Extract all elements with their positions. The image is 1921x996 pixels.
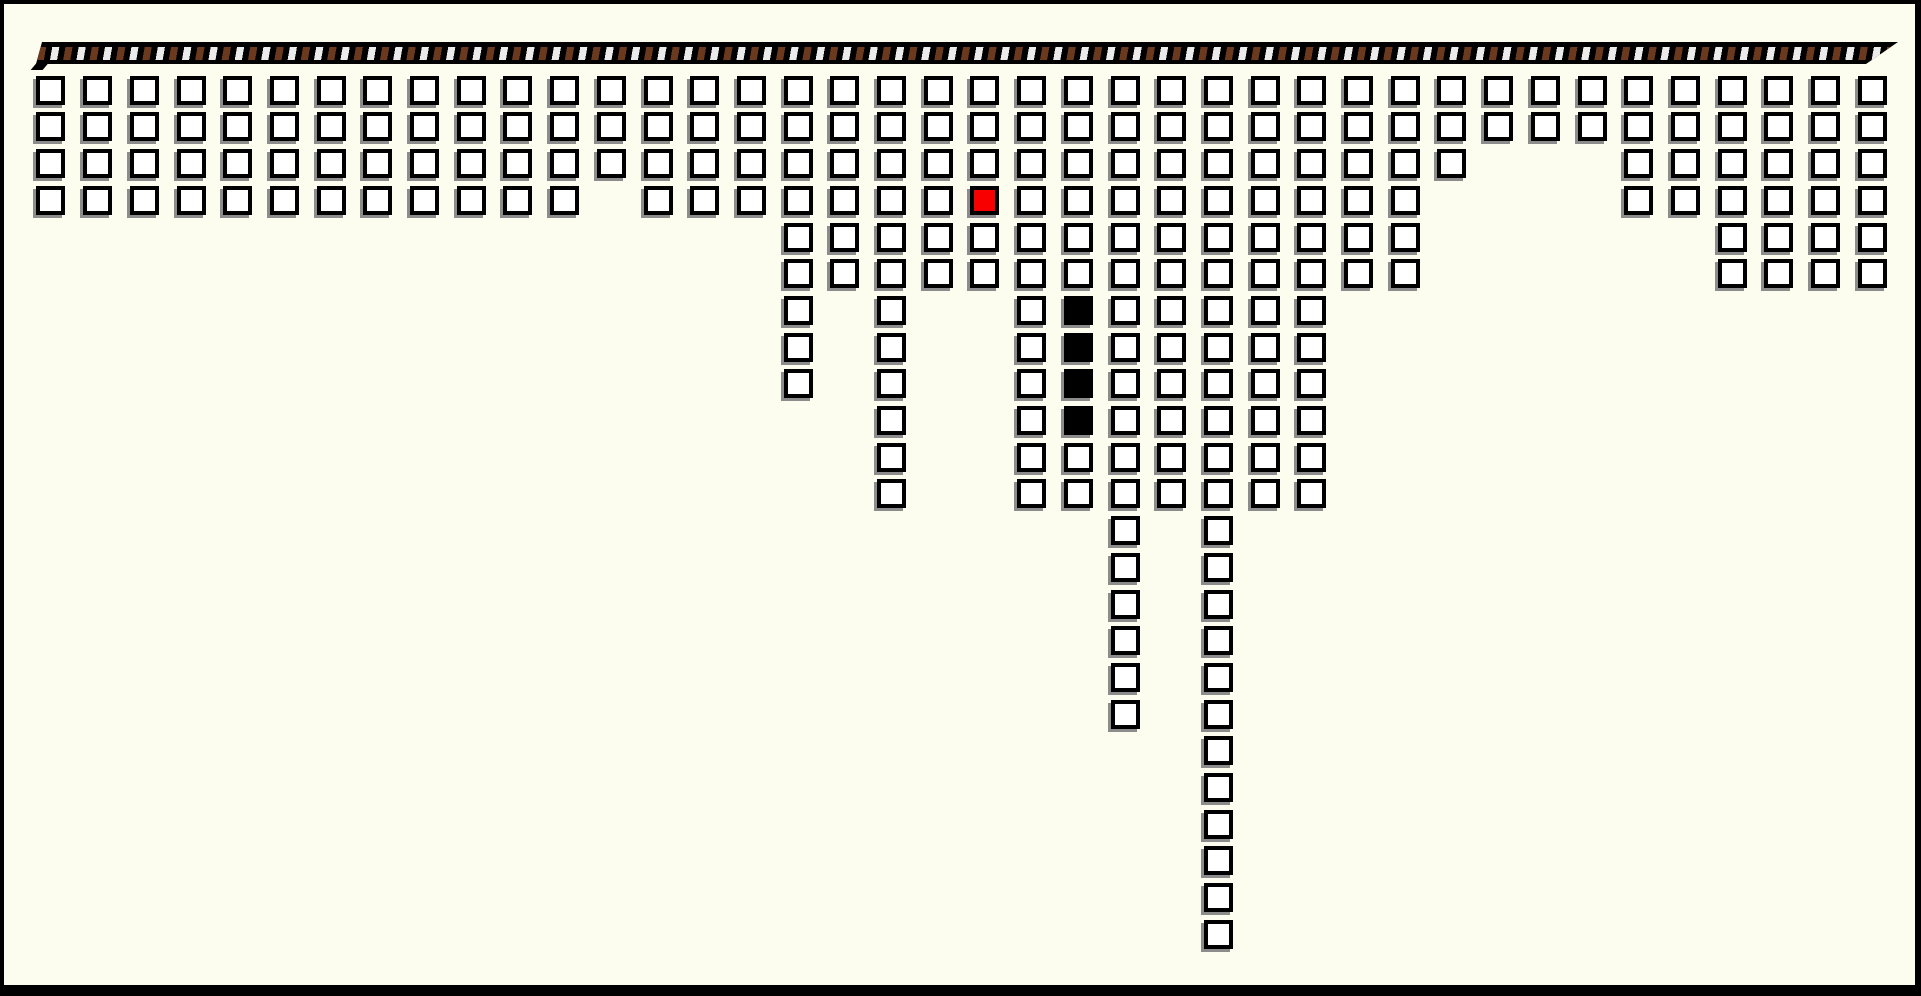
grid-cell: [970, 112, 999, 141]
black-cell: [1064, 333, 1093, 362]
grid-cell: [924, 149, 953, 178]
grid-cell: [597, 149, 626, 178]
grid-cell: [784, 76, 813, 105]
grid-cell: [503, 186, 532, 215]
grid-cell: [1111, 516, 1140, 545]
grid-cell: [877, 76, 906, 105]
grid-cell: [223, 149, 252, 178]
grid-cell: [1017, 76, 1046, 105]
grid-cell: [36, 76, 65, 105]
red-cell: [970, 186, 999, 215]
grid-cell: [1344, 259, 1373, 288]
grid-cell: [457, 186, 486, 215]
squares-grid: [4, 4, 1915, 985]
grid-cell: [1111, 663, 1140, 692]
grid-cell: [1297, 369, 1326, 398]
grid-cell: [690, 76, 719, 105]
black-cell: [1064, 296, 1093, 325]
grid-cell: [1624, 112, 1653, 141]
grid-cell: [877, 406, 906, 435]
grid-cell: [1017, 406, 1046, 435]
grid-cell: [1811, 186, 1840, 215]
grid-cell: [1391, 259, 1420, 288]
grid-cell: [1064, 479, 1093, 508]
grid-cell: [644, 76, 673, 105]
grid-cell: [1111, 259, 1140, 288]
grid-cell: [1671, 112, 1700, 141]
grid-cell: [830, 149, 859, 178]
grid-cell: [317, 186, 346, 215]
grid-cell: [130, 186, 159, 215]
grid-cell: [924, 76, 953, 105]
grid-cell: [457, 112, 486, 141]
grid-cell: [1671, 76, 1700, 105]
grid-cell: [597, 112, 626, 141]
grid-cell: [1858, 112, 1887, 141]
grid-cell: [784, 149, 813, 178]
grid-cell: [784, 186, 813, 215]
grid-cell: [1111, 76, 1140, 105]
grid-cell: [503, 112, 532, 141]
grid-cell: [1204, 810, 1233, 839]
grid-cell: [1391, 76, 1420, 105]
grid-cell: [1531, 76, 1560, 105]
grid-cell: [1811, 223, 1840, 252]
grid-cell: [1064, 112, 1093, 141]
grid-cell: [1111, 700, 1140, 729]
grid-cell: [1064, 259, 1093, 288]
grid-cell: [177, 149, 206, 178]
grid-cell: [1297, 296, 1326, 325]
grid-cell: [970, 259, 999, 288]
grid-cell: [1157, 369, 1186, 398]
grid-cell: [457, 76, 486, 105]
grid-cell: [1391, 223, 1420, 252]
grid-cell: [1391, 149, 1420, 178]
grid-cell: [1344, 112, 1373, 141]
grid-cell: [830, 223, 859, 252]
grid-cell: [597, 76, 626, 105]
grid-cell: [1204, 296, 1233, 325]
grid-cell: [1111, 186, 1140, 215]
grid-cell: [784, 223, 813, 252]
grid-cell: [877, 479, 906, 508]
grid-cell: [877, 369, 906, 398]
grid-cell: [737, 149, 766, 178]
grid-cell: [550, 149, 579, 178]
grid-cell: [1204, 479, 1233, 508]
grid-cell: [877, 186, 906, 215]
black-cell: [1064, 369, 1093, 398]
grid-cell: [1111, 296, 1140, 325]
grid-cell: [1251, 333, 1280, 362]
grid-cell: [363, 76, 392, 105]
grid-cell: [1764, 223, 1793, 252]
grid-cell: [1204, 920, 1233, 949]
grid-cell: [830, 76, 859, 105]
grid-cell: [877, 149, 906, 178]
grid-cell: [1437, 112, 1466, 141]
grid-cell: [830, 112, 859, 141]
grid-cell: [1111, 406, 1140, 435]
grid-cell: [1157, 443, 1186, 472]
grid-cell: [1484, 76, 1513, 105]
grid-cell: [1017, 259, 1046, 288]
grid-cell: [1671, 186, 1700, 215]
grid-cell: [644, 149, 673, 178]
grid-cell: [784, 296, 813, 325]
grid-cell: [270, 149, 299, 178]
grid-cell: [1157, 223, 1186, 252]
grid-cell: [1344, 223, 1373, 252]
grid-cell: [1251, 479, 1280, 508]
grid-cell: [83, 76, 112, 105]
grid-cell: [1111, 369, 1140, 398]
grid-cell: [130, 112, 159, 141]
grid-cell: [924, 112, 953, 141]
grid-cell: [1297, 76, 1326, 105]
grid-cell: [1111, 553, 1140, 582]
grid-cell: [1344, 76, 1373, 105]
grid-cell: [1344, 186, 1373, 215]
grid-cell: [1157, 333, 1186, 362]
grid-cell: [784, 333, 813, 362]
grid-cell: [877, 296, 906, 325]
grid-cell: [550, 112, 579, 141]
grid-cell: [1858, 223, 1887, 252]
grid-cell: [1297, 479, 1326, 508]
grid-cell: [363, 149, 392, 178]
grid-cell: [1251, 369, 1280, 398]
grid-cell: [36, 186, 65, 215]
grid-cell: [1718, 259, 1747, 288]
grid-cell: [410, 149, 439, 178]
grid-cell: [1624, 149, 1653, 178]
grid-cell: [270, 186, 299, 215]
grid-cell: [36, 112, 65, 141]
grid-cell: [1251, 296, 1280, 325]
grid-cell: [924, 186, 953, 215]
grid-cell: [1297, 112, 1326, 141]
grid-cell: [1764, 112, 1793, 141]
grid-cell: [1064, 76, 1093, 105]
grid-cell: [363, 112, 392, 141]
grid-cell: [457, 149, 486, 178]
grid-cell: [1204, 736, 1233, 765]
grid-cell: [1204, 626, 1233, 655]
grid-cell: [1157, 149, 1186, 178]
grid-cell: [363, 186, 392, 215]
grid-cell: [1811, 76, 1840, 105]
grid-cell: [1764, 259, 1793, 288]
grid-cell: [1204, 406, 1233, 435]
grid-cell: [1297, 443, 1326, 472]
grid-cell: [1204, 553, 1233, 582]
grid-cell: [1251, 112, 1280, 141]
grid-cell: [1391, 186, 1420, 215]
black-cell: [1064, 406, 1093, 435]
grid-cell: [1111, 223, 1140, 252]
grid-cell: [177, 76, 206, 105]
grid-cell: [1251, 149, 1280, 178]
grid-cell: [1251, 76, 1280, 105]
grid-cell: [1064, 186, 1093, 215]
grid-cell: [784, 369, 813, 398]
grid-cell: [1251, 223, 1280, 252]
grid-cell: [1204, 259, 1233, 288]
grid-cell: [1251, 186, 1280, 215]
grid-cell: [1157, 406, 1186, 435]
grid-cell: [1531, 112, 1560, 141]
grid-cell: [1111, 626, 1140, 655]
grid-cell: [690, 112, 719, 141]
grid-cell: [1017, 149, 1046, 178]
grid-cell: [1111, 333, 1140, 362]
grid-cell: [1858, 186, 1887, 215]
grid-cell: [1204, 590, 1233, 619]
grid-cell: [1764, 149, 1793, 178]
grid-cell: [644, 186, 673, 215]
grid-cell: [924, 223, 953, 252]
grid-cell: [784, 259, 813, 288]
grid-cell: [1017, 369, 1046, 398]
grid-cell: [1204, 149, 1233, 178]
grid-cell: [1157, 296, 1186, 325]
grid-cell: [970, 223, 999, 252]
grid-cell: [1297, 149, 1326, 178]
grid-cell: [177, 112, 206, 141]
grid-cell: [784, 112, 813, 141]
grid-cell: [550, 186, 579, 215]
grid-cell: [1204, 369, 1233, 398]
grid-cell: [1718, 76, 1747, 105]
grid-cell: [1764, 186, 1793, 215]
grid-cell: [317, 149, 346, 178]
grid-cell: [830, 259, 859, 288]
grid-cell: [1297, 259, 1326, 288]
grid-cell: [83, 149, 112, 178]
grid-cell: [1858, 259, 1887, 288]
grid-cell: [1111, 479, 1140, 508]
grid-cell: [1297, 406, 1326, 435]
grid-cell: [1204, 76, 1233, 105]
grid-cell: [1811, 149, 1840, 178]
grid-cell: [130, 76, 159, 105]
grid-cell: [550, 76, 579, 105]
grid-cell: [1671, 149, 1700, 178]
grid-cell: [1204, 112, 1233, 141]
grid-cell: [1017, 479, 1046, 508]
grid-cell: [1251, 406, 1280, 435]
grid-cell: [1624, 76, 1653, 105]
grid-cell: [1064, 223, 1093, 252]
grid-cell: [1157, 259, 1186, 288]
grid-cell: [924, 259, 953, 288]
grid-cell: [877, 333, 906, 362]
grid-cell: [317, 76, 346, 105]
grid-cell: [1017, 223, 1046, 252]
grid-cell: [1017, 186, 1046, 215]
grid-cell: [1858, 76, 1887, 105]
grid-cell: [1718, 186, 1747, 215]
grid-cell: [1204, 223, 1233, 252]
grid-cell: [1204, 700, 1233, 729]
grid-cell: [737, 186, 766, 215]
grid-cell: [1718, 149, 1747, 178]
grid-cell: [1157, 186, 1186, 215]
grid-cell: [737, 76, 766, 105]
grid-cell: [177, 186, 206, 215]
simulation-canvas[interactable]: [0, 0, 1921, 996]
grid-cell: [410, 112, 439, 141]
grid-cell: [1204, 846, 1233, 875]
grid-cell: [1111, 443, 1140, 472]
grid-cell: [503, 76, 532, 105]
grid-cell: [503, 149, 532, 178]
grid-cell: [223, 76, 252, 105]
grid-cell: [644, 112, 673, 141]
grid-cell: [223, 186, 252, 215]
grid-cell: [1578, 76, 1607, 105]
grid-cell: [130, 149, 159, 178]
grid-cell: [877, 259, 906, 288]
grid-cell: [1204, 883, 1233, 912]
grid-cell: [830, 186, 859, 215]
grid-cell: [410, 186, 439, 215]
grid-cell: [410, 76, 439, 105]
grid-cell: [1811, 259, 1840, 288]
grid-cell: [877, 223, 906, 252]
grid-cell: [1718, 112, 1747, 141]
grid-cell: [690, 186, 719, 215]
grid-cell: [1111, 149, 1140, 178]
grid-cell: [1157, 112, 1186, 141]
grid-cell: [1437, 76, 1466, 105]
grid-cell: [690, 149, 719, 178]
grid-cell: [223, 112, 252, 141]
grid-cell: [877, 443, 906, 472]
grid-cell: [737, 112, 766, 141]
grid-cell: [1251, 259, 1280, 288]
grid-cell: [970, 76, 999, 105]
grid-cell: [1157, 76, 1186, 105]
grid-cell: [1344, 149, 1373, 178]
grid-cell: [1017, 112, 1046, 141]
grid-cell: [877, 112, 906, 141]
grid-cell: [1484, 112, 1513, 141]
grid-cell: [1017, 296, 1046, 325]
grid-cell: [1578, 112, 1607, 141]
grid-cell: [270, 112, 299, 141]
grid-cell: [1764, 76, 1793, 105]
grid-cell: [1858, 149, 1887, 178]
grid-cell: [1297, 333, 1326, 362]
grid-cell: [1111, 590, 1140, 619]
grid-cell: [1718, 223, 1747, 252]
grid-cell: [1204, 516, 1233, 545]
grid-cell: [1064, 443, 1093, 472]
grid-cell: [1251, 443, 1280, 472]
grid-cell: [83, 186, 112, 215]
grid-cell: [970, 149, 999, 178]
grid-cell: [36, 149, 65, 178]
grid-cell: [83, 112, 112, 141]
grid-cell: [1811, 112, 1840, 141]
grid-cell: [1204, 186, 1233, 215]
grid-cell: [1064, 149, 1093, 178]
grid-cell: [270, 76, 299, 105]
grid-cell: [317, 112, 346, 141]
grid-cell: [1017, 443, 1046, 472]
grid-cell: [1391, 112, 1420, 141]
grid-cell: [1204, 333, 1233, 362]
grid-cell: [1437, 149, 1466, 178]
grid-cell: [1204, 663, 1233, 692]
grid-cell: [1297, 186, 1326, 215]
grid-cell: [1111, 112, 1140, 141]
grid-cell: [1157, 479, 1186, 508]
grid-cell: [1017, 333, 1046, 362]
grid-cell: [1624, 186, 1653, 215]
grid-cell: [1204, 773, 1233, 802]
grid-cell: [1297, 223, 1326, 252]
grid-cell: [1204, 443, 1233, 472]
